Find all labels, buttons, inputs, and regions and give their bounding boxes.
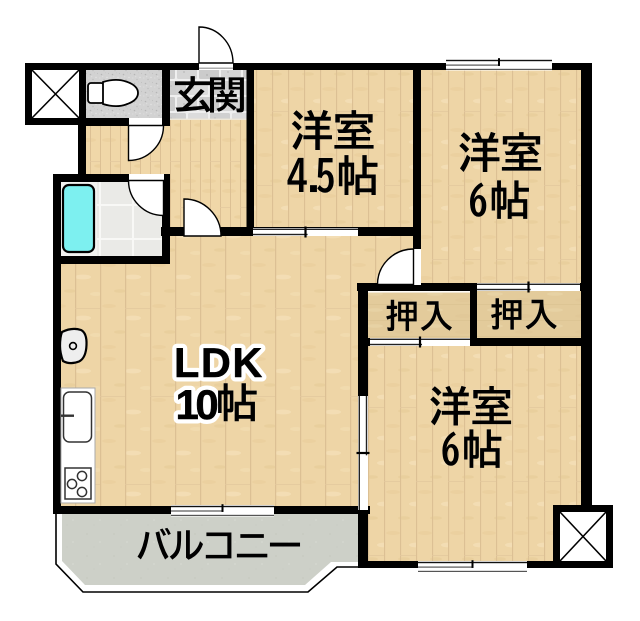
svg-text:10: 10 — [176, 381, 218, 428]
svg-text:LDK: LDK — [174, 339, 264, 386]
